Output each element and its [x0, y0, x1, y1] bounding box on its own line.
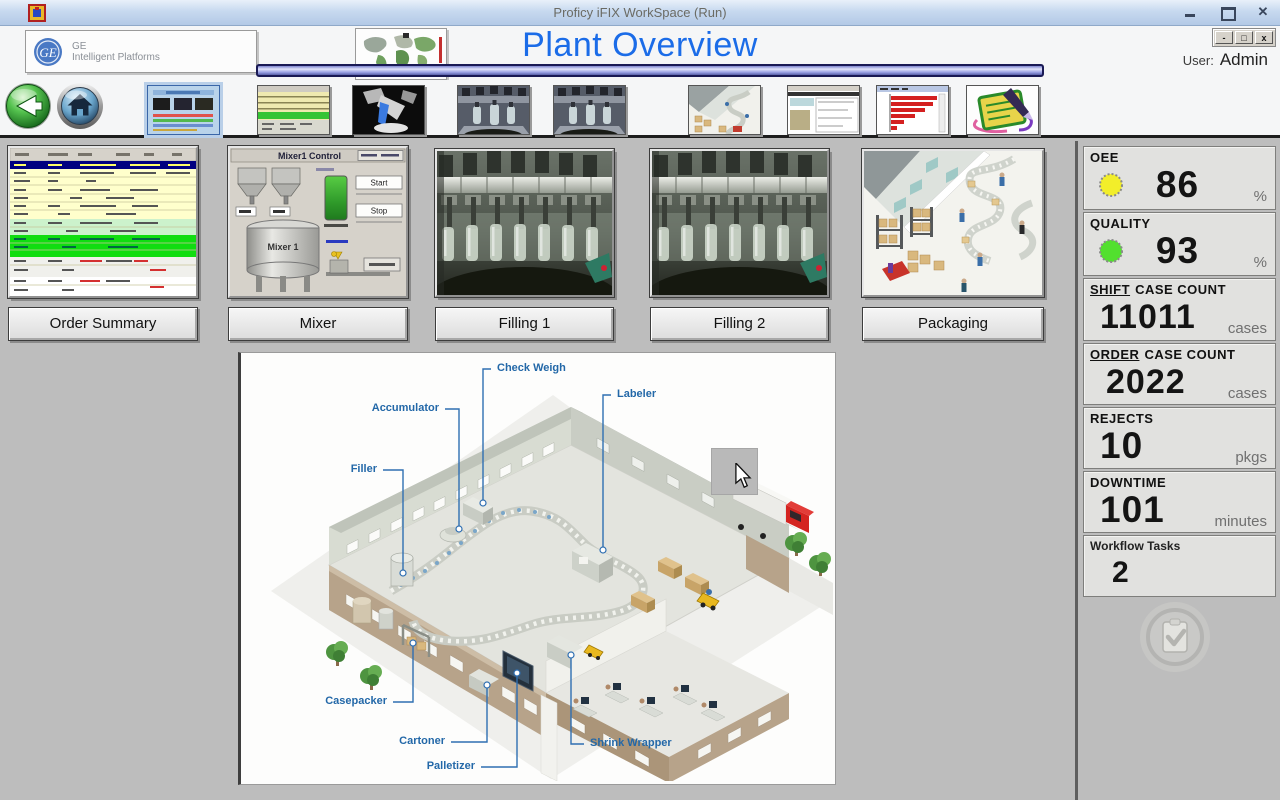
- kpi-downtime-label: DOWNTIME: [1084, 472, 1275, 490]
- ge-logo-line2: Intelligent Platforms: [72, 52, 160, 63]
- workflow-acknowledge-button[interactable]: [1146, 608, 1204, 666]
- doc-restore-icon[interactable]: □: [1235, 31, 1253, 44]
- kpi-rejects-unit: pkgs: [1235, 449, 1267, 466]
- order-summary-button[interactable]: Order Summary: [8, 307, 198, 341]
- window-titlebar: Proficy iFIX WorkSpace (Run) ✕: [0, 0, 1280, 26]
- home-button[interactable]: [56, 82, 104, 130]
- kpi-workflow-tasks: Workflow Tasks 2: [1083, 535, 1276, 597]
- kpi-order-case-count: ORDERCASE COUNT 2022 cases: [1083, 343, 1276, 405]
- label-palletizer: Palletizer: [409, 760, 475, 772]
- nav-thumb-downtime-pareto[interactable]: [876, 85, 949, 135]
- nav-thumb-reports[interactable]: [787, 85, 860, 135]
- kpi-oee-unit: %: [1254, 188, 1267, 205]
- home-icon: [56, 82, 104, 130]
- kpi-shift-label-prefix: SHIFT: [1090, 282, 1130, 297]
- kpi-workflow-value: 2: [1112, 556, 1130, 590]
- mixer-tank-label: Mixer 1: [267, 242, 298, 252]
- document-window-controls: - □ x: [1212, 28, 1276, 47]
- kpi-downtime: DOWNTIME 101 minutes: [1083, 471, 1276, 533]
- plant-floor-diagram: Check Weigh Labeler Accumulator Filler C…: [238, 352, 836, 785]
- label-casepacker: Casepacker: [289, 695, 387, 707]
- label-cartoner: Cartoner: [381, 735, 445, 747]
- nav-thumb-plant-overview[interactable]: [147, 85, 220, 135]
- navigation-row: [0, 80, 1280, 138]
- packaging-preview[interactable]: [862, 149, 1044, 297]
- ge-logo-button[interactable]: GE GE Intelligent Platforms: [25, 30, 257, 73]
- mixer-preview[interactable]: Mixer1 Control Mixer 1: [228, 146, 408, 298]
- kpi-workflow-label: Workflow Tasks: [1084, 536, 1275, 553]
- filling-2-preview[interactable]: [650, 149, 829, 297]
- mixer-stop-button-label: Stop: [371, 207, 388, 216]
- kpi-oee-label: OEE: [1084, 147, 1275, 165]
- kpi-shift-value: 11011: [1100, 298, 1196, 337]
- mixer-start-button-label: Start: [371, 179, 389, 188]
- kpi-shift-label-rest: CASE COUNT: [1135, 282, 1226, 297]
- doc-minimize-icon[interactable]: -: [1215, 31, 1233, 44]
- oee-status-led: [1096, 170, 1126, 200]
- mixer-button[interactable]: Mixer: [228, 307, 408, 341]
- label-check-weigh: Check Weigh: [497, 362, 566, 374]
- kpi-order-unit: cases: [1228, 385, 1267, 402]
- plant-isometric-illustration: [241, 353, 835, 781]
- ifix-workspace-window: Proficy iFIX WorkSpace (Run) ✕ GE GE Int…: [0, 0, 1280, 800]
- kpi-downtime-value: 101: [1100, 489, 1165, 531]
- back-icon: [4, 82, 52, 130]
- kpi-order-value: 2022: [1106, 363, 1186, 402]
- kpi-panel-divider: [1075, 141, 1078, 800]
- kpi-quality-value: 93: [1126, 230, 1229, 272]
- kpi-downtime-unit: minutes: [1214, 513, 1267, 530]
- kpi-rejects-label: REJECTS: [1084, 408, 1275, 426]
- filling-2-button[interactable]: Filling 2: [650, 307, 829, 341]
- user-label: User:: [1183, 53, 1214, 68]
- nav-thumb-mixer[interactable]: [352, 85, 425, 135]
- label-labeler: Labeler: [617, 388, 656, 400]
- mouse-cursor: [733, 463, 753, 489]
- packaging-button[interactable]: Packaging: [862, 307, 1044, 341]
- label-shrink-wrapper: Shrink Wrapper: [590, 737, 672, 749]
- kpi-shift-unit: cases: [1228, 320, 1267, 337]
- kpi-shift-case-count: SHIFTCASE COUNT 11011 cases: [1083, 278, 1276, 341]
- user-name: Admin: [1220, 50, 1268, 69]
- window-title: Proficy iFIX WorkSpace (Run): [0, 5, 1280, 20]
- kpi-quality: QUALITY 93 %: [1083, 212, 1276, 276]
- kpi-rejects: REJECTS 10 pkgs: [1083, 407, 1276, 469]
- kpi-oee: OEE 86 %: [1083, 146, 1276, 210]
- ge-logo-line1: GE: [72, 41, 160, 52]
- ge-monogram-icon: GE: [32, 36, 64, 68]
- filling-1-button[interactable]: Filling 1: [435, 307, 614, 341]
- quality-status-led: [1096, 236, 1126, 266]
- label-accumulator: Accumulator: [359, 402, 439, 414]
- nav-thumb-packaging[interactable]: [688, 85, 761, 135]
- close-icon[interactable]: ✕: [1256, 6, 1270, 18]
- nav-thumb-filling-1[interactable]: [457, 85, 530, 135]
- kpi-quality-label: QUALITY: [1084, 213, 1275, 231]
- kpi-rejects-value: 10: [1100, 425, 1143, 467]
- nav-thumb-workflow-tasks[interactable]: [966, 85, 1039, 135]
- kpi-order-label-prefix: ORDER: [1090, 347, 1139, 362]
- minimize-icon[interactable]: [1184, 6, 1198, 18]
- filling-1-preview[interactable]: [435, 149, 614, 297]
- kpi-order-label-rest: CASE COUNT: [1144, 347, 1235, 362]
- kpi-oee-value: 86: [1126, 164, 1229, 206]
- header: GE GE Intelligent Platforms Plant Over: [0, 26, 1280, 80]
- title-underline-bar: [256, 64, 1044, 77]
- checkmark-clipboard-icon: [1158, 618, 1192, 656]
- kpi-quality-unit: %: [1254, 254, 1267, 271]
- page-title: Plant Overview: [340, 26, 940, 65]
- svg-text:GE: GE: [39, 45, 56, 60]
- mixer-preview-title: Mixer1 Control: [278, 151, 341, 161]
- nav-thumb-filling-2[interactable]: [553, 85, 626, 135]
- nav-thumb-order-summary[interactable]: [257, 85, 330, 135]
- maximize-icon[interactable]: [1220, 6, 1234, 18]
- label-filler: Filler: [317, 463, 377, 475]
- back-button[interactable]: [4, 82, 52, 130]
- order-summary-preview[interactable]: [8, 146, 198, 298]
- doc-close-icon[interactable]: x: [1255, 31, 1273, 44]
